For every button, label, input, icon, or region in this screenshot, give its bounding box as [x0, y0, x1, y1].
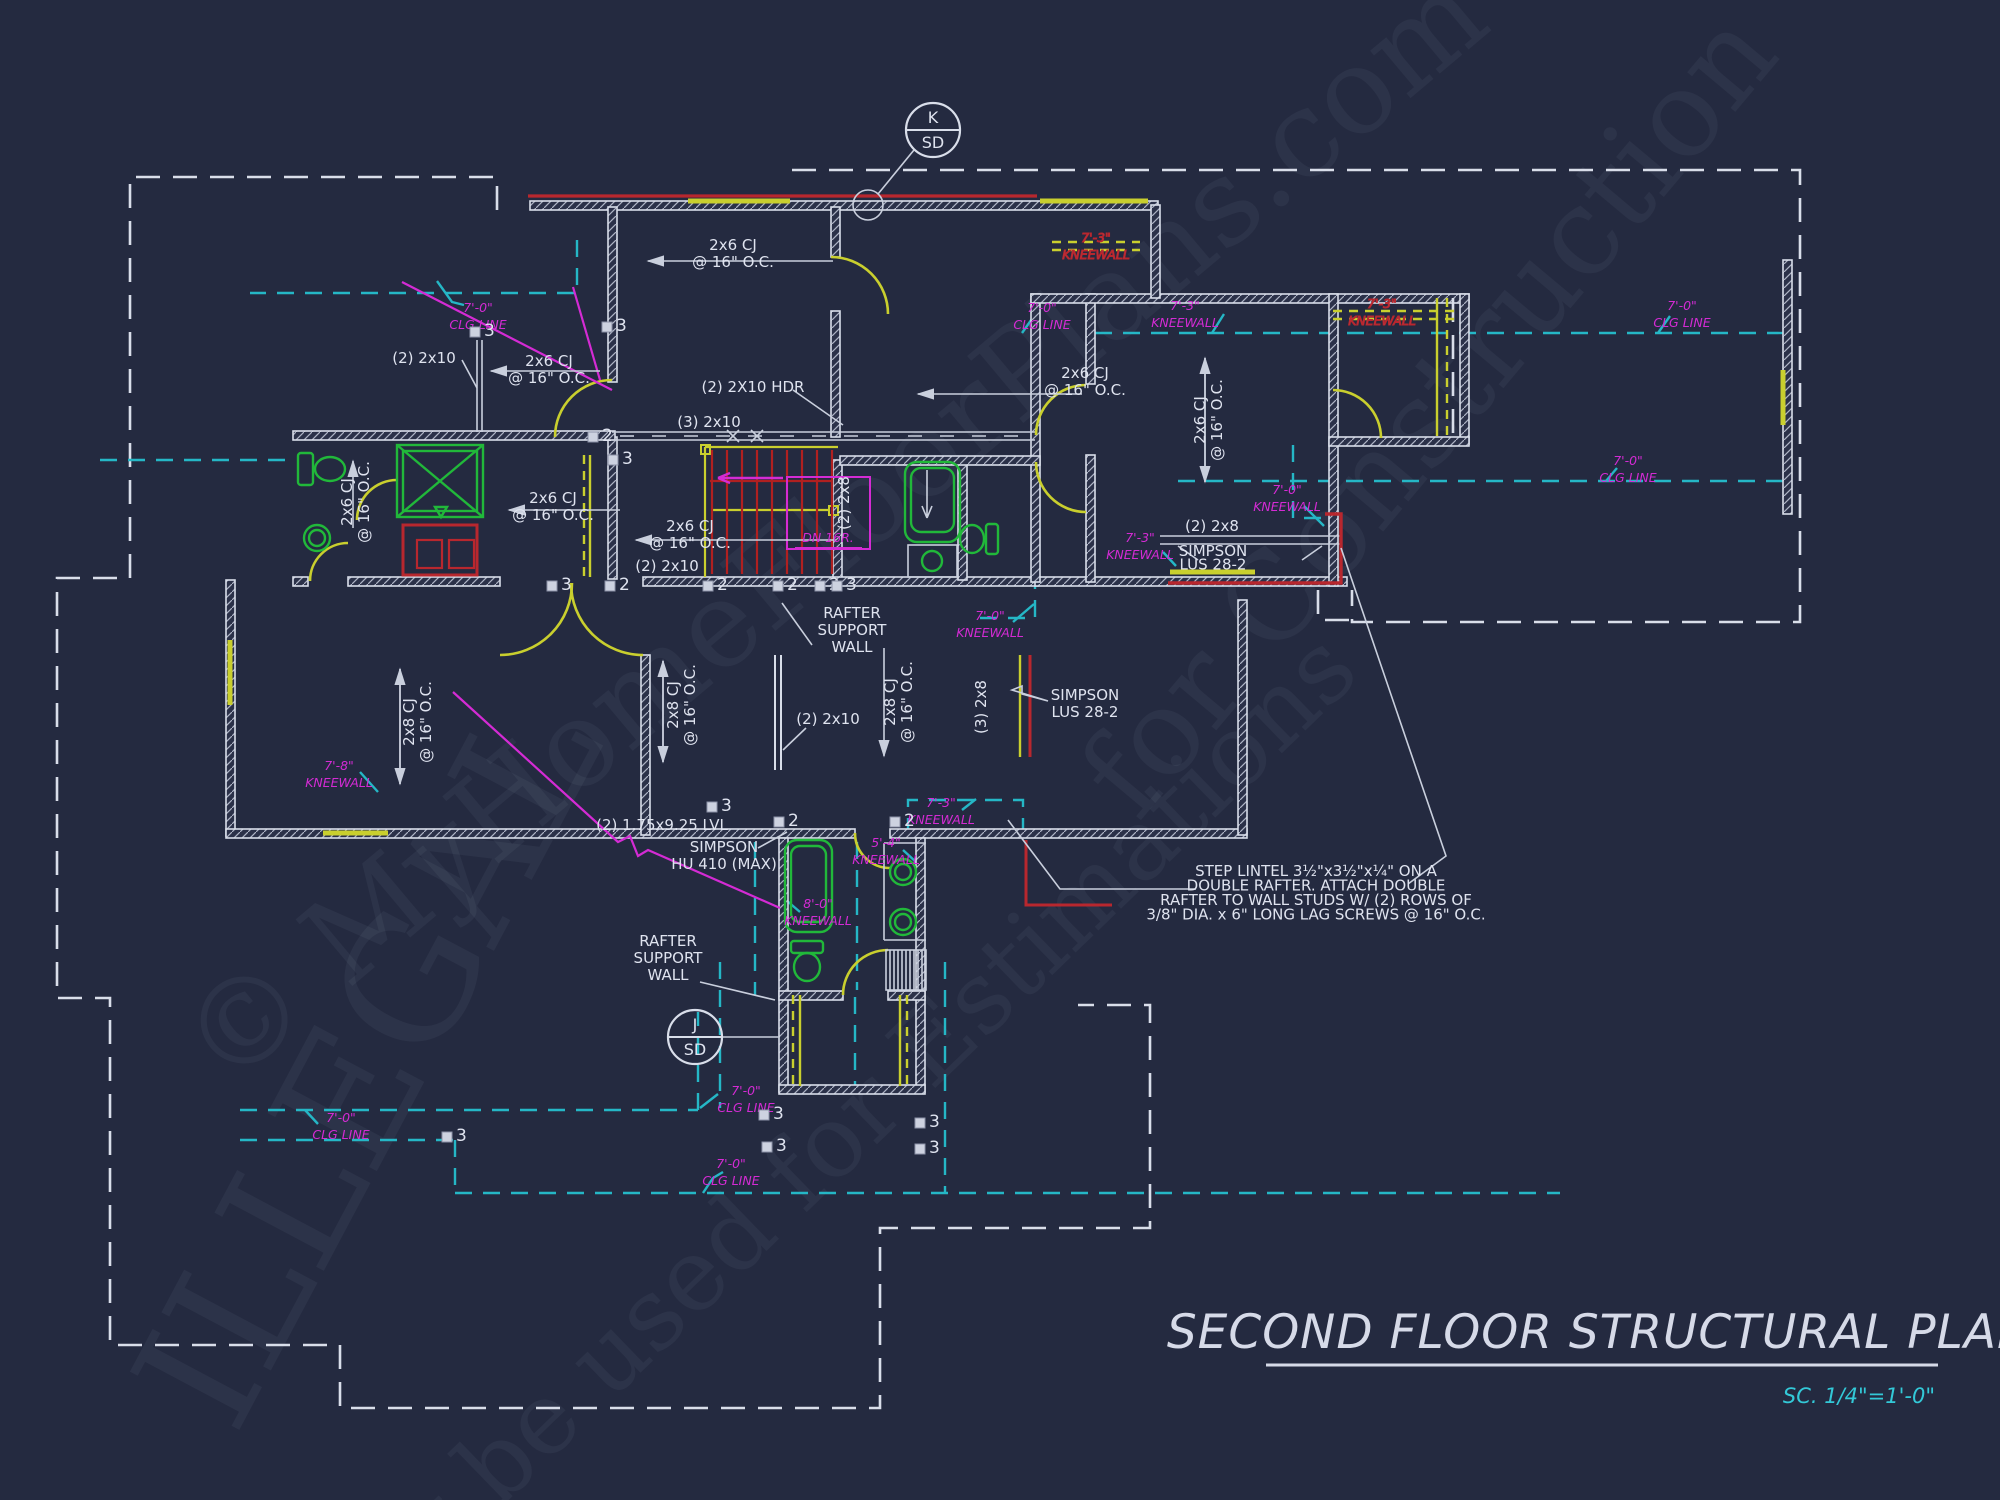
label-simpson-right: SIMPSONLUS 28-2	[1051, 686, 1119, 721]
label-cj-right-vert: 2x6 CJ@ 16" O.C.	[1191, 379, 1226, 461]
label-cj-mid1: 2x6 CJ@ 16" O.C.	[512, 489, 594, 524]
post-marker-count: 2	[788, 811, 799, 831]
label-clg-3: 7'-0"CLG LINE	[1653, 298, 1710, 330]
label-step-lintel-note: STEP LINTEL 3½"x3½"x¼" ON ADOUBLE RAFTER…	[1146, 862, 1485, 924]
post-marker-count: 3	[846, 575, 857, 595]
section-marker-letter: J	[692, 1015, 698, 1034]
label-hdr-2x10: (2) 2X10 HDR	[702, 378, 805, 396]
label-2x10-upleft: (2) 2x10	[392, 349, 456, 367]
post-marker-square	[762, 1142, 772, 1152]
post-marker-square	[915, 1144, 925, 1154]
label-2x10-bedM: (2) 2x10	[796, 710, 860, 728]
drawing-scale: SC. 1/4"=1'-0"	[1783, 1384, 1935, 1408]
post-marker-count: 3	[929, 1138, 940, 1158]
section-marker-sheet: SD	[922, 133, 944, 152]
post-marker-count: 3	[622, 449, 633, 469]
label-rafter-wall-2: RAFTERSUPPORTWALL	[634, 932, 704, 984]
post-marker-count: 3	[721, 796, 732, 816]
post-marker-square	[707, 802, 717, 812]
post-marker-square	[547, 581, 557, 591]
title-block: SECOND FLOOR STRUCTURAL PLAN SC. 1/4"=1'…	[1167, 1305, 2000, 1408]
label-cj-bedL-vert: 2x8 CJ@ 16" O.C.	[400, 681, 435, 763]
post-marker-square	[588, 432, 598, 442]
post-marker-count: 3	[484, 321, 495, 341]
post-marker-square	[759, 1110, 769, 1120]
label-clg-4: 7'-0"CLG LINE	[1599, 453, 1656, 485]
post-marker-count: 3	[929, 1112, 940, 1132]
label-knee-6: 7'-0"KNEEWALL	[956, 608, 1024, 640]
post-marker-square	[605, 581, 615, 591]
post-marker-square	[890, 817, 900, 827]
cad-floor-plan-canvas: ILLEGAL© MyHomeFloorPlans.comfor Constru…	[0, 0, 2000, 1500]
label-2x8-simpson-top: (2) 2x8	[1185, 517, 1239, 535]
label-cj-mid2: 2x6 CJ@ 16" O.C.	[649, 517, 731, 552]
label-beam-3-2x8: (3) 2x8	[972, 680, 990, 734]
section-marker-sheet: SD	[684, 1040, 706, 1059]
post-marker-square	[774, 817, 784, 827]
post-marker-square	[915, 1118, 925, 1128]
label-cj-top: 2x6 CJ@ 16" O.C.	[692, 236, 774, 271]
section-marker-letter: K	[928, 108, 939, 127]
post-marker-square	[832, 581, 842, 591]
label-2x10-mid: (2) 2x10	[635, 557, 699, 575]
label-cj-upleft: 2x6 CJ@ 16" O.C.	[508, 352, 590, 387]
label-simpson-hu: SIMPSONHU 410 (MAX)	[671, 838, 777, 873]
post-marker-count: 3	[776, 1136, 787, 1156]
post-marker-square	[470, 327, 480, 337]
post-marker-square	[815, 581, 825, 591]
post-marker-count: 2	[717, 575, 728, 595]
label-cj-bedR-vert: 2x8 CJ@ 16" O.C.	[881, 661, 916, 743]
label-lvl-beam: (2) 1.75x9.25 LVL	[596, 816, 728, 834]
watermark-text: for Construction	[1054, 0, 1804, 842]
post-marker-count: 2	[602, 426, 613, 446]
label-dn-16r: DN 16R.	[802, 530, 854, 545]
post-marker-square	[773, 581, 783, 591]
label-2x8-stair-vert: (2) 2x8	[835, 476, 853, 530]
post-marker-count: 3	[456, 1126, 467, 1146]
label-knee-10: 8'-0"KNEEWALL	[784, 896, 852, 928]
label-simpson-top: SIMPSONLUS 28-2	[1179, 542, 1247, 574]
post-marker-count: 2	[787, 575, 798, 595]
label-rafter-wall-1: RAFTERSUPPORTWALL	[818, 604, 888, 656]
label-knee-5: 7'-3"KNEEWALL	[1106, 530, 1174, 562]
post-marker-square	[608, 455, 618, 465]
post-marker-square	[442, 1132, 452, 1142]
drawing-title: SECOND FLOOR STRUCTURAL PLAN	[1167, 1305, 2000, 1360]
post-marker-count: 2	[904, 811, 915, 831]
post-marker-count: 3	[773, 1104, 784, 1124]
watermark-layer: ILLEGAL© MyHomeFloorPlans.comfor Constru…	[96, 0, 1804, 1500]
floor-plan-drawing: ILLEGAL© MyHomeFloorPlans.comfor Constru…	[0, 0, 2000, 1500]
label-knee-9: 5'-4"KNEEWALL	[852, 835, 920, 867]
post-marker-count: 3	[616, 316, 627, 336]
post-marker-count: 2	[619, 575, 630, 595]
post-marker-square	[703, 581, 713, 591]
label-beam-3-2x10: (3) 2x10	[677, 413, 741, 431]
post-marker-square	[602, 322, 612, 332]
post-marker-count: 3	[561, 575, 572, 595]
